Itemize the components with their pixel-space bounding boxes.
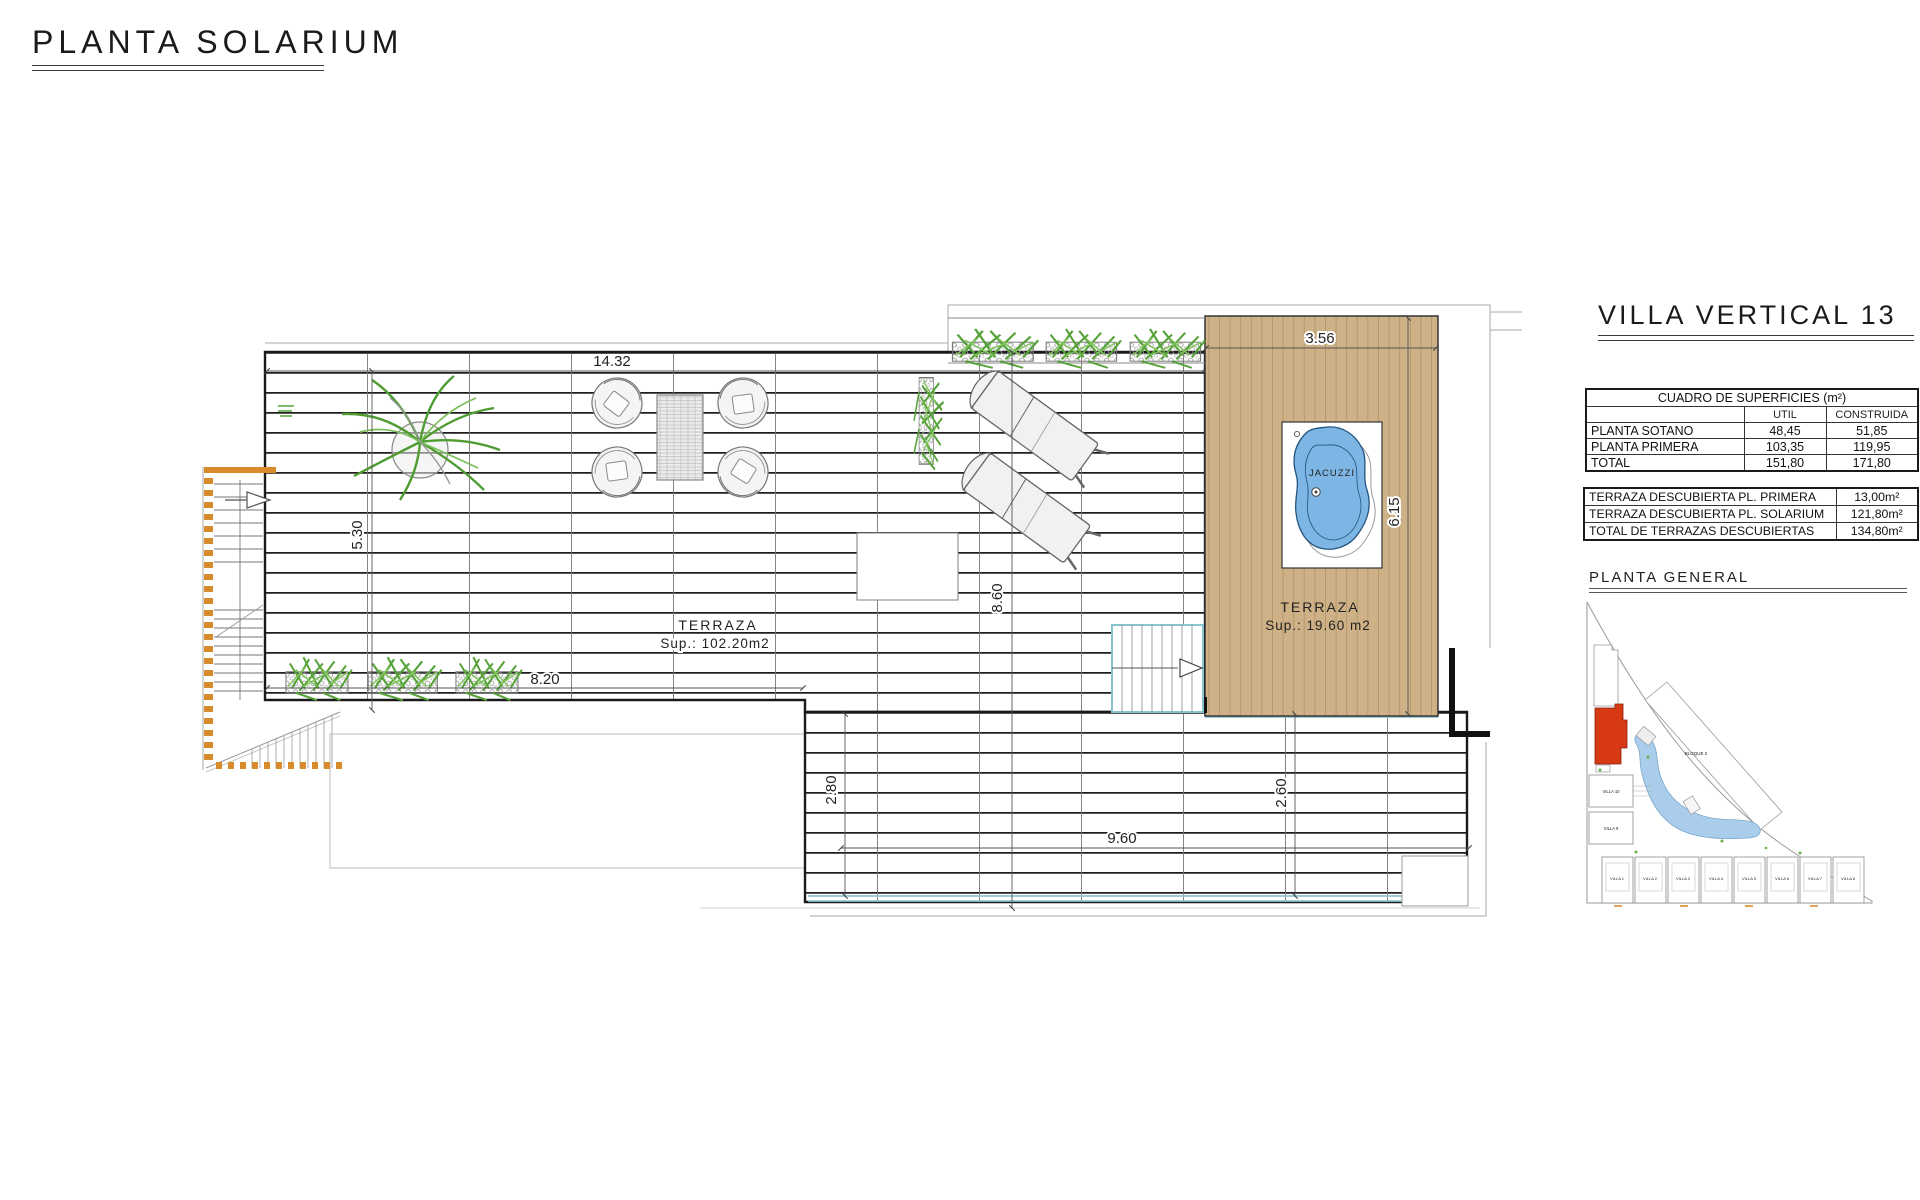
row-label: PLANTA SOTANO bbox=[1586, 423, 1744, 439]
table-row: PLANTA PRIMERA 103,35 119,95 bbox=[1586, 439, 1918, 455]
row-value: 121,80m² bbox=[1836, 506, 1918, 523]
dim-lower-left-height: 2.80 bbox=[823, 775, 840, 804]
row-value: 13,00m² bbox=[1836, 488, 1918, 506]
lower-deck bbox=[805, 712, 1467, 902]
table-row: TOTAL 151,80 171,80 bbox=[1586, 455, 1918, 472]
svg-text:VILLA 4: VILLA 4 bbox=[1709, 876, 1724, 881]
floor-plan-drawing: JACUZZI bbox=[0, 0, 1920, 1200]
svg-text:VILLA 9: VILLA 9 bbox=[1604, 826, 1619, 831]
dim-solarium-width: 3.56 bbox=[1305, 330, 1334, 347]
row-construida: 51,85 bbox=[1826, 423, 1918, 439]
terrace-main-name: TERRAZA bbox=[678, 617, 757, 633]
terraces-table: TERRAZA DESCUBIERTA PL. PRIMERA 13,00m² … bbox=[1583, 487, 1919, 541]
floor-plan-sheet: PLANTA SOLARIUM bbox=[0, 0, 1920, 1200]
site-plan-title-underline bbox=[1589, 588, 1907, 593]
skylight-box bbox=[857, 533, 958, 600]
villa-title-underline bbox=[1598, 335, 1914, 341]
svg-text:VILLA 7: VILLA 7 bbox=[1808, 876, 1823, 881]
row-label: TOTAL bbox=[1586, 455, 1744, 472]
surfaces-table-title: CUADRO DE SUPERFICIES (m²) bbox=[1586, 389, 1918, 407]
row-construida: 171,80 bbox=[1826, 455, 1918, 472]
site-villa10-box: VILLA 10 bbox=[1589, 775, 1633, 807]
site-building-topleft bbox=[1594, 645, 1618, 706]
svg-text:VILLA 1: VILLA 1 bbox=[1610, 876, 1625, 881]
site-villa9-box: VILLA 9 bbox=[1589, 812, 1633, 844]
row-label: TERRAZA DESCUBIERTA PL. PRIMERA bbox=[1584, 488, 1836, 506]
site-map: BLOQUE 2 VILLA 10 VILLA 9 bbox=[1587, 602, 1872, 907]
row-label: TERRAZA DESCUBIERTA PL. SOLARIUM bbox=[1584, 506, 1836, 523]
row-util: 103,35 bbox=[1744, 439, 1826, 455]
jacuzzi-label: JACUZZI bbox=[1309, 468, 1355, 479]
table-row: PLANTA SOTANO 48,45 51,85 bbox=[1586, 423, 1918, 439]
svg-text:VILLA 2: VILLA 2 bbox=[1643, 876, 1658, 881]
row-value: 134,80m² bbox=[1836, 523, 1918, 541]
dim-top-width: 14.32 bbox=[593, 353, 631, 370]
dim-solarium-height: 6.15 bbox=[1386, 497, 1403, 526]
dim-mid-height: 8.60 bbox=[989, 583, 1006, 612]
row-util: 151,80 bbox=[1744, 455, 1826, 472]
terrace-main-area: Sup.: 102.20m2 bbox=[660, 636, 769, 651]
jacuzzi: JACUZZI bbox=[1282, 422, 1382, 568]
surfaces-col-blank bbox=[1586, 407, 1744, 423]
dim-lower-right-height: 2.60 bbox=[1273, 778, 1290, 807]
surfaces-table: CUADRO DE SUPERFICIES (m²) UTIL CONSTRUI… bbox=[1585, 388, 1919, 472]
svg-text:VILLA 10: VILLA 10 bbox=[1603, 789, 1621, 794]
row-util: 48,45 bbox=[1744, 423, 1826, 439]
site-orange-marks bbox=[1614, 905, 1818, 907]
dim-planter-width: 8.20 bbox=[530, 671, 559, 688]
row-label: TOTAL DE TERRAZAS DESCUBIERTAS bbox=[1584, 523, 1836, 541]
site-plan-title-text: PLANTA GENERAL bbox=[1589, 569, 1749, 586]
row-label: PLANTA PRIMERA bbox=[1586, 439, 1744, 455]
site-bloque2-label: BLOQUE 2 bbox=[1685, 751, 1708, 756]
table-row: TERRAZA DESCUBIERTA PL. PRIMERA 13,00m² bbox=[1584, 488, 1918, 506]
dim-left-height: 5.30 bbox=[349, 520, 366, 549]
top-planter-shelf bbox=[948, 318, 1205, 368]
villa-title-text: VILLA VERTICAL 13 bbox=[1598, 300, 1897, 330]
svg-text:VILLA 6: VILLA 6 bbox=[1775, 876, 1790, 881]
dim-lower-width: 9.60 bbox=[1107, 830, 1136, 847]
deck-notch bbox=[1402, 856, 1468, 906]
terrace-solarium-name: TERRAZA bbox=[1280, 599, 1359, 615]
solarium-staircase bbox=[1112, 625, 1203, 712]
site-plan-title: PLANTA GENERAL bbox=[1589, 569, 1907, 593]
row-construida: 119,95 bbox=[1826, 439, 1918, 455]
svg-text:VILLA 3: VILLA 3 bbox=[1676, 876, 1691, 881]
svg-text:VILLA 5: VILLA 5 bbox=[1742, 876, 1757, 881]
surfaces-col-construida: CONSTRUIDA bbox=[1826, 407, 1918, 423]
svg-text:VILLA 8: VILLA 8 bbox=[1841, 876, 1856, 881]
villa-title: VILLA VERTICAL 13 bbox=[1598, 300, 1914, 341]
surfaces-col-util: UTIL bbox=[1744, 407, 1826, 423]
terrace-solarium-area: Sup.: 19.60 m2 bbox=[1265, 618, 1371, 633]
dining-table bbox=[657, 395, 703, 480]
table-row: TOTAL DE TERRAZAS DESCUBIERTAS 134,80m² bbox=[1584, 523, 1918, 541]
table-row: TERRAZA DESCUBIERTA PL. SOLARIUM 121,80m… bbox=[1584, 506, 1918, 523]
